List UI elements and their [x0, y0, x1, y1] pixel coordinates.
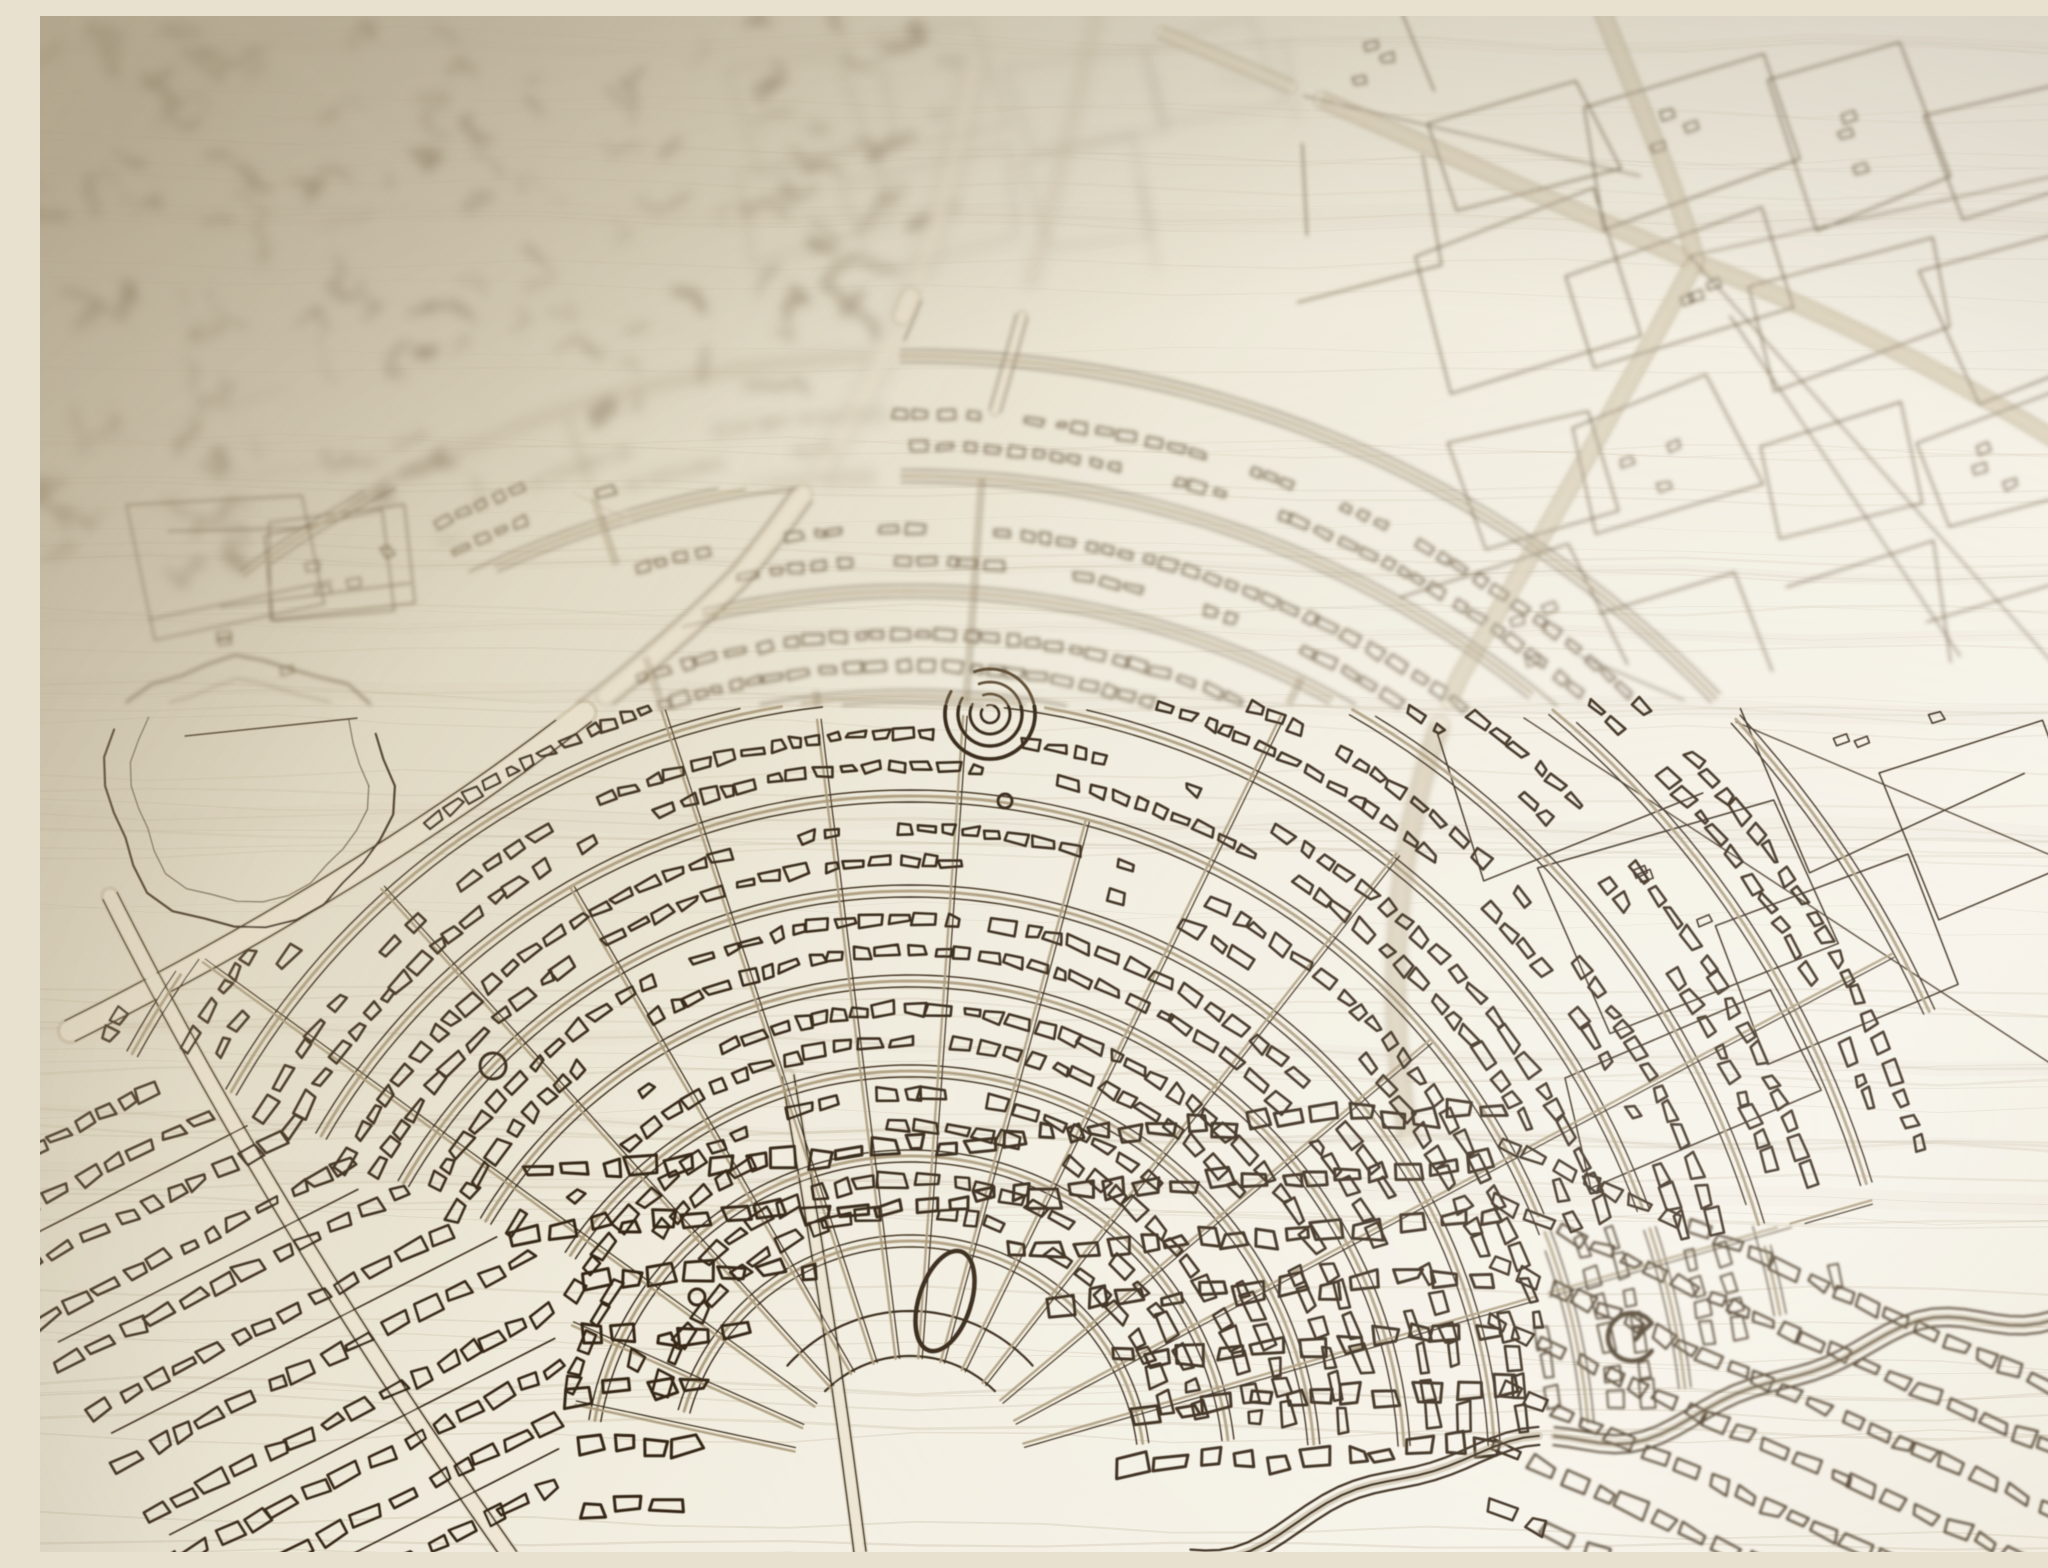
- vignette-overlay: [40, 16, 2048, 1552]
- wooden-city-map-photo: Close-up photograph of a city street map…: [40, 16, 2048, 1552]
- engraved-map-artwork: [40, 16, 2048, 1552]
